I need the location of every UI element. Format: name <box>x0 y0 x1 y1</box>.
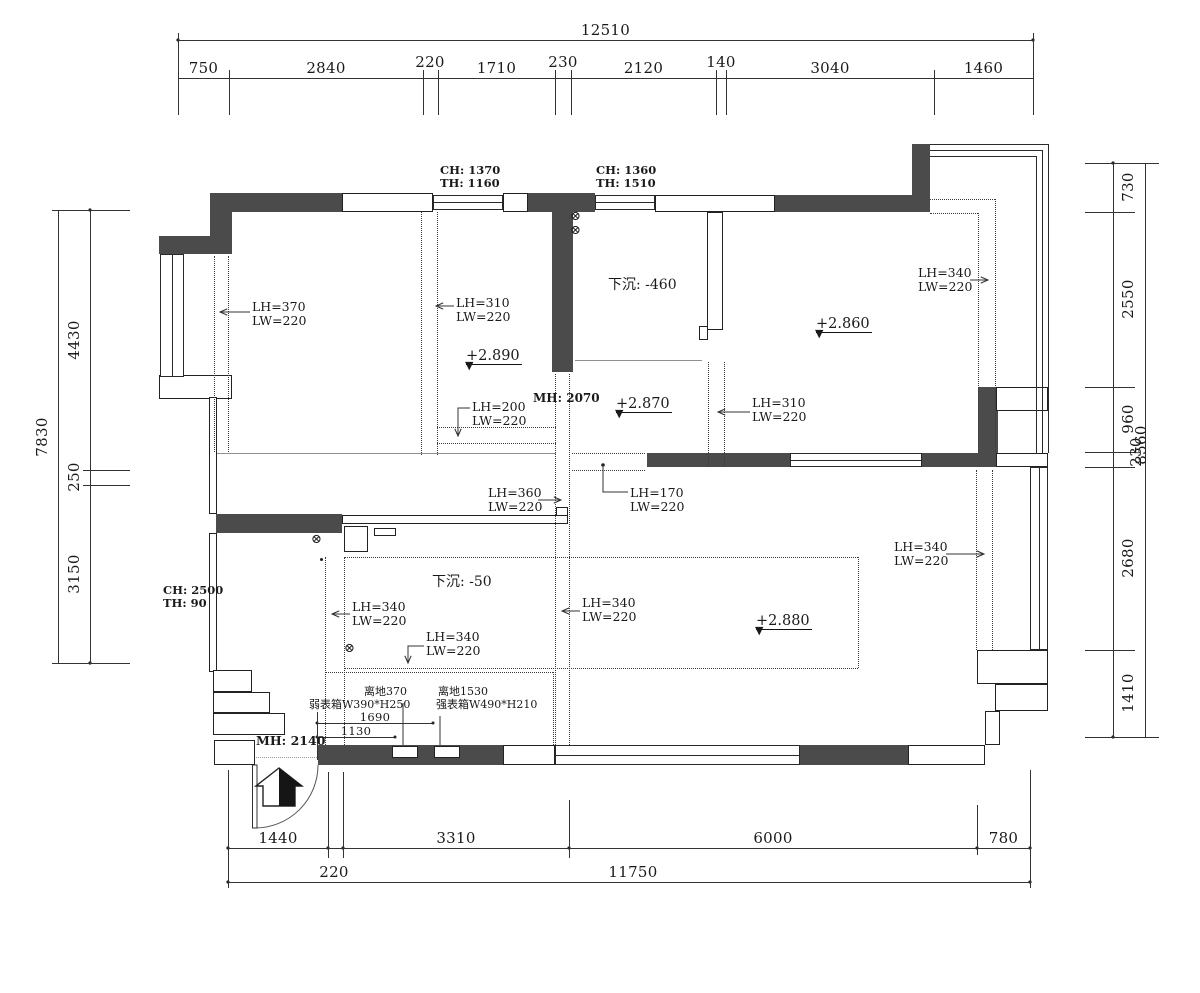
door-spec-label: CH: 2500TH: 90 <box>163 584 223 610</box>
level-mark: +2.880▼ <box>756 613 812 629</box>
dim-seg: 1690 <box>317 711 433 723</box>
outlet-icon: ⊗ <box>570 210 581 223</box>
curtain-label: LH=340LW=220 <box>352 600 406 628</box>
wall-dark <box>912 144 930 195</box>
wall <box>977 650 1048 684</box>
dim-line <box>90 210 91 663</box>
dim-total-left: 7830 <box>33 417 51 456</box>
curtain-line <box>708 362 709 467</box>
curtain-label: LH=340LW=220 <box>894 540 948 568</box>
wall <box>908 745 985 765</box>
window-spec-label: CH: 1360TH: 1510 <box>596 164 656 190</box>
dim-seg: 1410 <box>1119 673 1137 712</box>
curtain-label: LH=170LW=220 <box>630 486 684 514</box>
window <box>595 195 655 210</box>
meter-box-weak <box>392 746 418 758</box>
outlet-icon: ⊗ <box>311 533 322 546</box>
dim-total-bottom: 11750 <box>593 863 673 881</box>
outlet-icon: ⊗ <box>570 224 581 237</box>
window <box>160 254 184 377</box>
dim-seg: 750 <box>178 59 229 77</box>
wall <box>995 684 1048 711</box>
curtain-line <box>555 374 556 745</box>
dim-tick <box>1085 387 1135 388</box>
dim-tick <box>328 772 329 858</box>
dim-total-top: 12510 <box>178 21 1033 39</box>
shaft <box>344 526 368 552</box>
wall-dark <box>775 195 930 212</box>
sunken-label: 下沉: -50 <box>432 576 492 588</box>
curtain-label: LH=310LW=220 <box>456 296 510 324</box>
dim-line <box>58 210 59 663</box>
ceiling-line <box>344 668 858 669</box>
stair-step <box>213 670 252 692</box>
wall <box>209 397 217 514</box>
curtain-line <box>572 453 645 454</box>
wall <box>214 740 255 765</box>
ceiling-line <box>553 672 554 745</box>
dim-seg-offset: 220 <box>319 863 349 881</box>
wall <box>159 375 232 399</box>
dim-seg: 4430 <box>65 320 83 359</box>
curtain-label: LH=310LW=220 <box>752 396 806 424</box>
curtain-label: LH=340LW=220 <box>582 596 636 624</box>
wall <box>707 212 723 330</box>
wall-dark <box>159 236 232 254</box>
floor-plan: ⊗ ⊗ ⊗ ⊗ 12510 750 2840 220 1710 230 2120… <box>0 0 1200 993</box>
wall-dark <box>210 212 232 238</box>
wall-dark <box>647 453 790 467</box>
dim-tick <box>716 70 717 115</box>
dim-seg: 3040 <box>726 59 934 77</box>
meter-label-weak: 弱表箱W390*H250 <box>309 699 410 711</box>
entry-height-label: MH: 2140 <box>256 734 325 747</box>
wall-dark <box>210 193 342 212</box>
outlet-icon: ⊗ <box>344 642 355 655</box>
dim-seg: 6000 <box>569 829 977 847</box>
dim-tick <box>555 70 556 115</box>
dim-tick <box>83 470 130 471</box>
dim-tick <box>52 663 130 664</box>
sunken-label: 下沉: -460 <box>608 279 677 291</box>
curtain-label: LH=370LW=220 <box>252 300 306 328</box>
dim-seg: 250 <box>65 462 83 492</box>
meter-label-strong-height: 离地1530 <box>438 686 488 698</box>
ceiling-line <box>344 557 858 558</box>
curtain-label: LH=360LW=220 <box>488 486 542 514</box>
wall <box>985 711 1000 745</box>
dim-tick <box>1085 737 1135 738</box>
curtain-line <box>930 199 995 200</box>
window <box>433 195 503 210</box>
curtain-line <box>437 212 438 455</box>
curtain-label: LH=340LW=220 <box>426 630 480 658</box>
curtain-line <box>437 443 556 444</box>
wall-dark <box>920 453 982 467</box>
dim-seg: 730 <box>1119 172 1137 202</box>
window <box>555 745 800 765</box>
room-boundary <box>217 453 556 454</box>
window <box>790 453 922 467</box>
curtain-line <box>995 199 996 452</box>
ceiling-line <box>325 672 553 673</box>
curtain-line <box>569 374 570 745</box>
curtain-label: LH=200LW=220 <box>472 400 526 428</box>
level-mark: +2.890▼ <box>466 348 522 364</box>
meter-box-strong <box>434 746 460 758</box>
curtain-line <box>992 470 993 650</box>
curtain-line <box>421 212 422 455</box>
curtain-line <box>724 362 725 467</box>
dim-tick <box>1085 467 1135 468</box>
dim-seg: 1460 <box>934 59 1033 77</box>
dim-tick <box>423 70 424 115</box>
window <box>1030 467 1048 650</box>
window-spec-label: CH: 1370TH: 1160 <box>440 164 500 190</box>
dim-tick <box>1135 737 1159 738</box>
dim-line <box>228 882 1030 883</box>
entry-arrow-icon <box>256 768 302 806</box>
wall <box>342 515 568 524</box>
curtain-line <box>214 256 215 452</box>
dim-tick <box>83 485 130 486</box>
dim-tick <box>1085 163 1135 164</box>
curtain-line <box>572 470 645 471</box>
dim-tick <box>1085 650 1135 651</box>
dim-line <box>178 78 1033 79</box>
stair-step <box>213 692 270 713</box>
dim-seg: 780 <box>977 829 1030 847</box>
meter-label-weak-height: 离地370 <box>364 686 407 698</box>
dim-tick <box>1033 33 1034 115</box>
threshold-line <box>256 757 317 758</box>
dim-tick <box>52 210 130 211</box>
dim-seg: 1130 <box>317 725 395 737</box>
wall <box>503 745 555 765</box>
stair-step <box>213 713 285 735</box>
wall <box>503 193 528 212</box>
wall-dark <box>528 193 595 212</box>
room-boundary <box>575 360 702 361</box>
level-mark: +2.860▼ <box>816 316 872 332</box>
dim-seg: 3150 <box>65 554 83 593</box>
wall <box>699 326 708 340</box>
dim-seg: 1440 <box>228 829 328 847</box>
entry-arrow-icon-fill <box>279 768 302 806</box>
meter-label-strong: 强表箱W490*H210 <box>436 699 537 711</box>
dim-seg: 2840 <box>229 59 423 77</box>
wall <box>996 453 1048 467</box>
wall-dark <box>800 745 908 765</box>
wall <box>342 193 433 212</box>
dim-seg: 2550 <box>1119 279 1137 318</box>
entry-door-leaf <box>253 765 258 828</box>
dim-line <box>178 40 1033 41</box>
dim-seg: 3310 <box>343 829 569 847</box>
wall <box>655 195 775 212</box>
entry-door-arc <box>255 765 318 828</box>
balcony-window <box>930 156 1037 453</box>
curtain-line <box>978 213 979 452</box>
dim-line <box>228 848 1030 849</box>
dim-tick <box>1085 212 1135 213</box>
dot <box>320 558 323 561</box>
dim-tick <box>1135 163 1159 164</box>
wall <box>556 507 568 516</box>
curtain-label: LH=340LW=220 <box>918 266 972 294</box>
ceiling-line <box>858 557 859 668</box>
appliance <box>374 528 396 536</box>
curtain-line <box>228 256 229 452</box>
curtain-line <box>976 470 977 650</box>
pass-height-label: MH: 2070 <box>533 392 600 405</box>
wall-dark <box>216 514 342 533</box>
dim-seg: 2680 <box>1119 538 1137 577</box>
level-mark: +2.870▼ <box>616 396 672 412</box>
dim-tick <box>1030 770 1031 888</box>
curtain-line <box>930 213 978 214</box>
dim-seg-overlap: 230 <box>1127 437 1145 467</box>
